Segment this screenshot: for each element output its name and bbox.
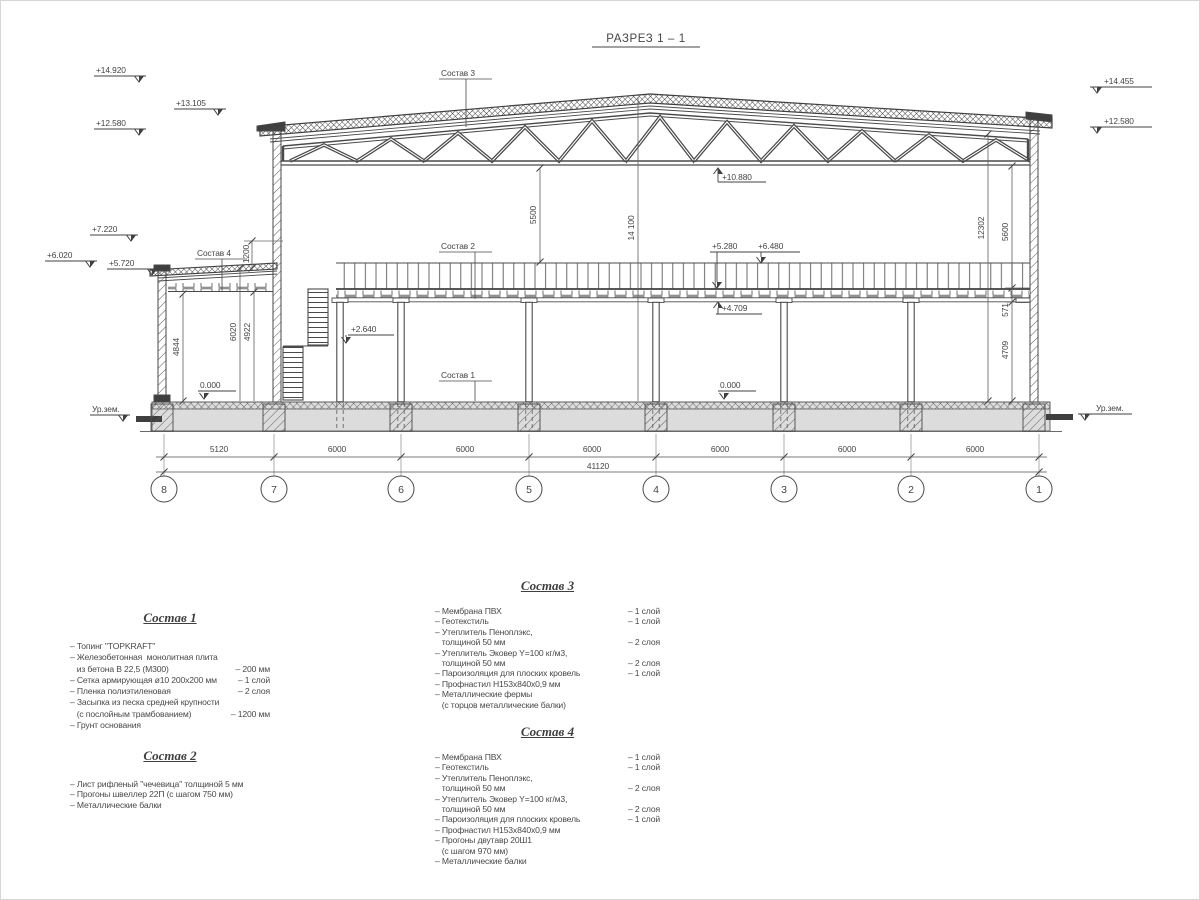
legend-item: – Утеплитель Пеноплэкс, xyxy=(435,773,660,783)
legend-item: – Геотекстиль – 1 слой xyxy=(435,616,660,626)
main-roof xyxy=(260,94,1052,142)
grid-bubble-7: 7 xyxy=(271,484,277,496)
legend-item: толщиной 50 мм – 2 слоя xyxy=(435,783,660,793)
elevation-marks-right xyxy=(1078,87,1152,414)
legend-item-text: – Профнастил Н153х840х0,9 мм xyxy=(435,825,560,835)
wall-grid-1 xyxy=(1030,119,1038,402)
level-floor-annex: 0.000 xyxy=(200,380,221,390)
ground-level-label-right: Ур.зем. xyxy=(1096,403,1124,413)
legend-sostav-1: Состав 1 – Топинг "TOPKRAFT" – Железобет… xyxy=(70,610,270,731)
mezzanine xyxy=(332,263,1030,402)
legend-item: – Утеплитель Пеноплэкс, xyxy=(435,627,660,637)
legend-item-text: (с послойным трамбованием) xyxy=(70,709,191,720)
legend-sostav-1-title: Состав 1 xyxy=(70,610,270,626)
legend-item-qty: – 1 слой xyxy=(628,762,660,772)
dim-span-8-7: 5120 xyxy=(210,444,229,454)
level-truss-bottom: +10.880 xyxy=(722,172,752,182)
stair-flight-upper xyxy=(308,289,328,345)
legend-item: (с шагом 970 мм) xyxy=(435,846,660,856)
legend-item: – Пароизоляция для плоских кровель – 1 с… xyxy=(435,814,660,824)
grid-bubble-6: 6 xyxy=(398,484,404,496)
dim-ridge-height: 14 100 xyxy=(626,215,636,240)
legend-item-text: – Грунт основания xyxy=(70,720,141,731)
dim-right-upper: 5600 xyxy=(1000,222,1010,241)
level-5720: +5.720 xyxy=(109,258,135,268)
legend-sostav-4-title: Состав 4 xyxy=(435,724,660,740)
legend-item: – Засыпка из песка средней крупности xyxy=(70,697,270,708)
legend-item-qty: – 1 слой xyxy=(628,606,660,616)
legend-item-qty: – 1 слой xyxy=(628,616,660,626)
right-step xyxy=(1046,414,1073,420)
level-eave-left: +12.580 xyxy=(96,118,126,128)
legend-item: – Прогоны швеллер 22П (с шагом 750 мм) xyxy=(70,789,270,799)
callout-sostav3: Состав 3 xyxy=(441,68,475,78)
legend-item: – Профнастил Н153х840х0,9 мм xyxy=(435,679,660,689)
annex-wall-grid-8 xyxy=(158,270,166,402)
legend-item-text: толщиной 50 мм xyxy=(435,783,505,793)
dim-annex-total: 6020 xyxy=(228,322,238,341)
legend-item: – Профнастил Н153х840х0,9 мм xyxy=(435,825,660,835)
drawing-sheet: { "title": "РАЗРЕЗ 1 – 1", "levels": { "… xyxy=(0,0,1200,900)
grid-bubble-1: 1 xyxy=(1036,484,1042,496)
legend-item-text: толщиной 50 мм xyxy=(435,637,505,647)
level-deck-top: +5.280 xyxy=(712,241,738,251)
level-6020: +6.020 xyxy=(47,250,73,260)
legend-item-text: – Прогоны швеллер 22П (с шагом 750 мм) xyxy=(70,789,233,799)
stairs xyxy=(283,289,328,400)
legend-item-text: толщиной 50 мм xyxy=(435,658,505,668)
level-floor-main: 0.000 xyxy=(720,380,741,390)
legend-item-text: – Пароизоляция для плоских кровель xyxy=(435,814,580,824)
level-deck-bottom: +4.709 xyxy=(722,303,748,313)
dim-span-2-1: 6000 xyxy=(966,444,985,454)
callout-sostav4: Состав 4 xyxy=(197,248,231,258)
legend-item-text: – Профнастил Н153х840х0,9 мм xyxy=(435,679,560,689)
legend-item: толщиной 50 мм – 2 слоя xyxy=(435,804,660,814)
legend-sostav-2: Состав 2 – Лист рифленый "чечевица" толщ… xyxy=(70,748,270,810)
legend-sostav-1-items: – Топинг "TOPKRAFT" – Железобетонная мон… xyxy=(70,641,270,731)
legend-item-text: из бетона В 22,5 (М300) xyxy=(70,664,169,675)
legend-item-text: – Топинг "TOPKRAFT" xyxy=(70,641,155,652)
legend-item-qty: – 2 слоя xyxy=(628,658,660,668)
legend-item-text: – Утеплитель Эковер Y=100 кг/м3, xyxy=(435,648,567,658)
section-drawing: РАЗРЕЗ 1 – 1 xyxy=(0,0,1200,535)
legend-item-qty: – 1200 мм xyxy=(231,709,270,720)
legend-item: – Пленка полиэтиленовая – 2 слоя xyxy=(70,686,270,697)
level-eave-top-left: +13.105 xyxy=(176,98,206,108)
legend-item: – Утеплитель Эковер Y=100 кг/м3, xyxy=(435,648,660,658)
level-ridge-right: +14.455 xyxy=(1104,76,1134,86)
legend-item: (с торцов металлические балки) xyxy=(435,700,660,710)
legend-item: – Металлические фермы xyxy=(435,689,660,699)
vertical-dimensions xyxy=(180,97,1031,405)
legend-item-text: – Геотекстиль xyxy=(435,762,489,772)
legend-sostav-4-items: – Мембрана ПВХ – 1 слой – Геотекстиль – … xyxy=(435,752,660,866)
legend-item-qty: – 200 мм xyxy=(235,664,270,675)
dim-parapet: 1200 xyxy=(241,244,251,263)
grid-bubble-8: 8 xyxy=(161,484,167,496)
legend-item-qty: – 1 слой xyxy=(628,668,660,678)
legend-item-text: – Сетка армирующая ø10 200х200 мм xyxy=(70,675,217,686)
legend-item: – Мембрана ПВХ – 1 слой xyxy=(435,606,660,616)
legend-item-text: – Пленка полиэтиленовая xyxy=(70,686,171,697)
legend-item: – Топинг "TOPKRAFT" xyxy=(70,641,270,652)
legend-item: – Металлические балки xyxy=(435,856,660,866)
legend-item-text: толщиной 50 мм xyxy=(435,804,505,814)
legend-item: толщиной 50 мм – 2 слоя xyxy=(435,658,660,668)
legend-sostav-4: Состав 4 – Мембрана ПВХ – 1 слой – Геоте… xyxy=(435,724,660,866)
grid-bubble-3: 3 xyxy=(781,484,787,496)
legend-item: – Лист рифленый "чечевица" толщиной 5 мм xyxy=(70,779,270,789)
legend-item-text: – Железобетонная монолитная плита xyxy=(70,652,218,663)
grid-bubble-2: 2 xyxy=(908,484,914,496)
grid-bubble-5: 5 xyxy=(526,484,532,496)
legend-item: – Железобетонная монолитная плита xyxy=(70,652,270,663)
deck-joists xyxy=(336,291,1030,298)
dim-truss-clear: 5500 xyxy=(528,205,538,224)
legend-sostav-3-items: – Мембрана ПВХ – 1 слой – Геотекстиль – … xyxy=(435,606,660,710)
dim-span-6-5: 6000 xyxy=(456,444,475,454)
legend-item: – Грунт основания xyxy=(70,720,270,731)
legend-sostav-2-title: Состав 2 xyxy=(70,748,270,764)
legend-item-text: – Геотекстиль xyxy=(435,616,489,626)
legend-item: – Металлические балки xyxy=(70,800,270,810)
dim-annex-clear: 4844 xyxy=(171,337,181,356)
ground-level-label-left: Ур.зем. xyxy=(92,404,120,414)
page-title: РАЗРЕЗ 1 – 1 xyxy=(606,33,685,45)
dim-span-3-2: 6000 xyxy=(838,444,857,454)
legend-item-text: – Утеплитель Пеноплэкс, xyxy=(435,627,533,637)
dim-span-4-3: 6000 xyxy=(711,444,730,454)
legend-item-text: – Мембрана ПВХ xyxy=(435,606,502,616)
legend-item-text: – Мембрана ПВХ xyxy=(435,752,502,762)
grid-bubbles: 8 7 6 5 4 3 2 1 xyxy=(151,476,1052,502)
legend-item-text: – Утеплитель Эковер Y=100 кг/м3, xyxy=(435,794,567,804)
legend-item-text: – Утеплитель Пеноплэкс, xyxy=(435,773,533,783)
callout-sostav1: Состав 1 xyxy=(441,370,475,380)
dim-deck-depth: 571 xyxy=(1000,303,1010,317)
legend-item-text: – Лист рифленый "чечевица" толщиной 5 мм xyxy=(70,779,243,789)
legend-item: толщиной 50 мм – 2 слоя xyxy=(435,637,660,647)
level-ridge-left: +14.920 xyxy=(96,65,126,75)
legend-item: – Пароизоляция для плоских кровель – 1 с… xyxy=(435,668,660,678)
legend-item-text: – Засыпка из песка средней крупности xyxy=(70,697,219,708)
elevation-marks-left xyxy=(45,76,226,415)
level-7220: +7.220 xyxy=(92,224,118,234)
legend-item: – Геотекстиль – 1 слой xyxy=(435,762,660,772)
legend-item-text: (с торцов металлические балки) xyxy=(435,700,566,710)
legend-item-text: – Металлические фермы xyxy=(435,689,532,699)
level-mid: +2.640 xyxy=(351,324,377,334)
legend-item-qty: – 1 слой xyxy=(628,752,660,762)
legend-item: – Утеплитель Эковер Y=100 кг/м3, xyxy=(435,794,660,804)
legend-item-text: – Прогоны двутавр 20Ш1 xyxy=(435,835,532,845)
legend-item-qty: – 2 слоя xyxy=(238,686,270,697)
legend-item-text: – Пароизоляция для плоских кровель xyxy=(435,668,580,678)
legend-item-text: – Металлические балки xyxy=(435,856,527,866)
grid-bubble-4: 4 xyxy=(653,484,659,496)
legend-item: (с послойным трамбованием) – 1200 мм xyxy=(70,709,270,720)
legend-item-qty: – 2 слоя xyxy=(628,783,660,793)
dim-annex-inner: 4922 xyxy=(242,322,252,341)
legend-item: – Прогоны двутавр 20Ш1 xyxy=(435,835,660,845)
dim-under-deck: 4709 xyxy=(1000,340,1010,359)
legend-sostav-2-items: – Лист рифленый "чечевица" толщиной 5 мм… xyxy=(70,779,270,810)
mezzanine-columns xyxy=(337,302,914,402)
legend-item-text: – Металлические балки xyxy=(70,800,162,810)
stair-flight-lower xyxy=(283,347,303,400)
annex-ceiling-joists xyxy=(168,283,273,291)
mezzanine-railing xyxy=(336,263,1030,289)
annex-wall-base xyxy=(154,395,170,402)
legend-sostav-3-title: Состав 3 xyxy=(435,578,660,594)
legend-item: – Мембрана ПВХ – 1 слой xyxy=(435,752,660,762)
level-eave-right: +12.580 xyxy=(1104,116,1134,126)
legend-item-text: (с шагом 970 мм) xyxy=(435,846,508,856)
legend-item-qty: – 1 слой xyxy=(238,675,270,686)
legend-item-qty: – 1 слой xyxy=(628,814,660,824)
legend-item: – Сетка армирующая ø10 200х200 мм – 1 сл… xyxy=(70,675,270,686)
callout-sostav2: Состав 2 xyxy=(441,241,475,251)
legend-sostav-3: Состав 3 – Мембрана ПВХ – 1 слой – Геоте… xyxy=(435,578,660,710)
dim-span-7-6: 6000 xyxy=(328,444,347,454)
dim-right-total: 12302 xyxy=(976,216,986,239)
level-rail-top: +6.480 xyxy=(758,241,784,251)
legend-item-qty: – 2 слоя xyxy=(628,804,660,814)
dim-total: 41120 xyxy=(587,461,610,471)
dim-span-5-4: 6000 xyxy=(583,444,602,454)
legend-item: из бетона В 22,5 (М300) – 200 мм xyxy=(70,664,270,675)
legend-item-qty: – 2 слоя xyxy=(628,637,660,647)
